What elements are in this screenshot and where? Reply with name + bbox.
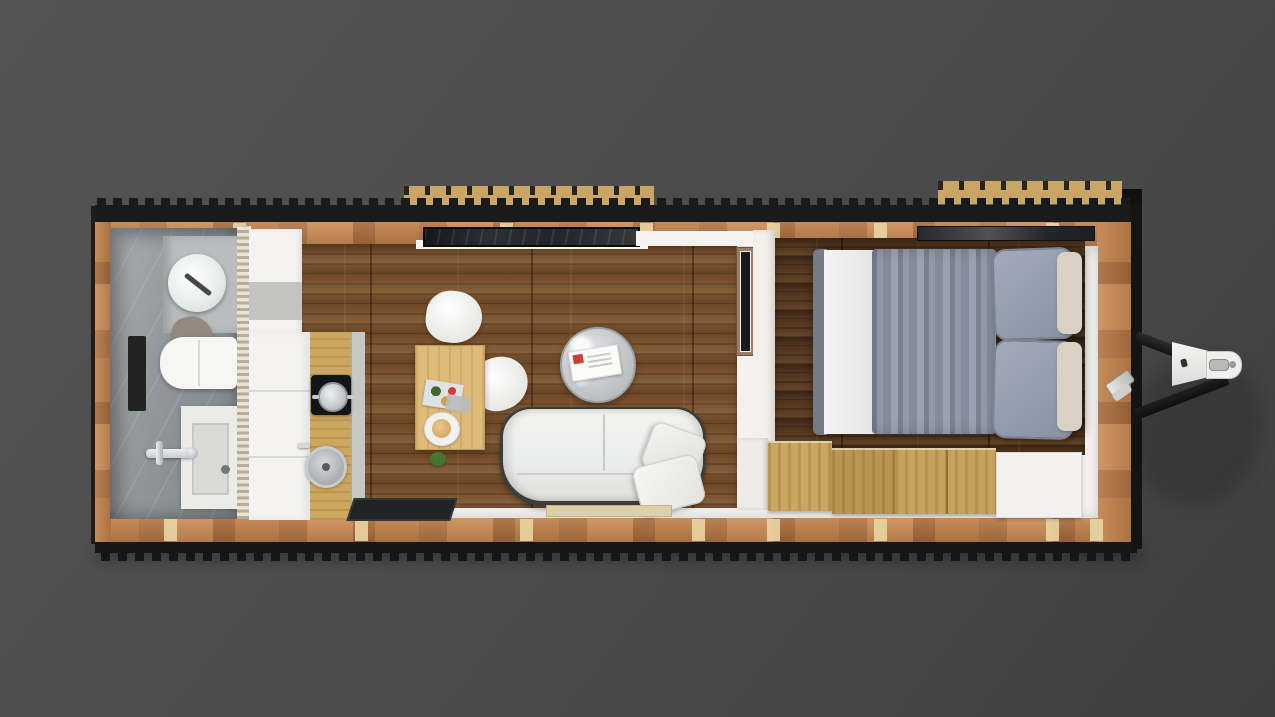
wall-plate-bottom	[95, 518, 1137, 542]
kitchen-faucet	[298, 443, 310, 448]
wall-stud	[1046, 519, 1059, 541]
storage-step	[768, 441, 832, 511]
kitchen-tall-cabinet	[249, 332, 311, 520]
kitchen-counter-end-panel	[351, 332, 365, 520]
storage-step	[895, 448, 996, 514]
bedroom-partition-wall	[753, 230, 775, 456]
cooking-pot	[318, 382, 348, 412]
headboard-cushion	[1057, 252, 1082, 334]
shower-mixer-faucet	[146, 449, 194, 458]
kitchen-floor-mat	[346, 498, 457, 521]
duvet	[872, 249, 996, 434]
headboard-cushion	[1057, 342, 1082, 431]
kitchen-round-sink	[305, 446, 347, 488]
wall-stud	[692, 519, 705, 541]
wall-stud	[874, 519, 887, 541]
vessel-sink	[168, 254, 226, 312]
stair-landing	[737, 438, 768, 510]
top-wall-strip	[636, 231, 756, 246]
shower-drain	[221, 465, 230, 474]
wall-stud	[767, 519, 780, 541]
living-top-window	[423, 227, 640, 247]
wall-plate-left	[95, 222, 111, 542]
wall-stud	[355, 519, 368, 541]
tv-screen	[740, 251, 751, 352]
storage-step	[832, 448, 895, 514]
doormat	[546, 505, 672, 517]
food-plate	[424, 412, 460, 446]
kitchen-wood-counter	[310, 332, 351, 520]
shower-wall-niche	[128, 336, 146, 411]
sofa-seam	[603, 415, 605, 471]
storage-box	[996, 452, 1082, 518]
folded-sheet	[824, 250, 876, 434]
toilet	[160, 337, 237, 389]
trailer-rail-top	[95, 205, 1137, 222]
hitch-coupler	[1206, 351, 1242, 379]
small-plant	[430, 452, 446, 466]
wall-stud	[520, 519, 533, 541]
kitchen-upper-counter	[249, 229, 302, 332]
wall-stud	[1090, 519, 1103, 541]
floor-plan-render	[0, 0, 1275, 717]
bedroom-top-window	[917, 226, 1095, 241]
wall-stud	[164, 519, 177, 541]
